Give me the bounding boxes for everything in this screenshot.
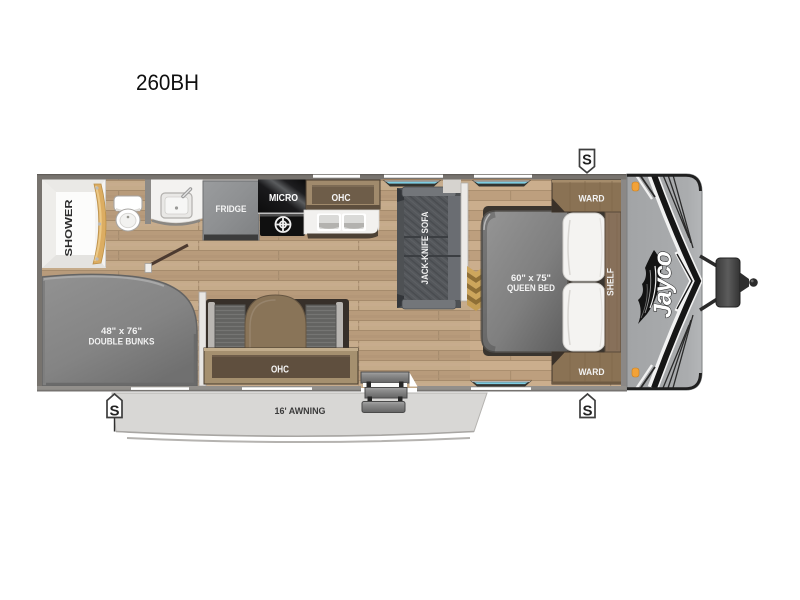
svg-text:FRIDGE: FRIDGE bbox=[216, 204, 247, 215]
svg-text:JACK-KNIFE SOFA: JACK-KNIFE SOFA bbox=[420, 211, 430, 284]
svg-text:OHC: OHC bbox=[271, 364, 289, 376]
svg-text:S: S bbox=[582, 403, 592, 420]
svg-text:Jayco: Jayco bbox=[649, 251, 677, 318]
svg-text:48" x 76": 48" x 76" bbox=[101, 326, 142, 337]
svg-text:QUEEN BED: QUEEN BED bbox=[507, 283, 555, 294]
svg-text:WARD: WARD bbox=[579, 193, 605, 203]
svg-text:WARD: WARD bbox=[579, 367, 605, 377]
svg-text:16' AWNING: 16' AWNING bbox=[275, 406, 326, 417]
svg-text:SHELF: SHELF bbox=[606, 268, 616, 296]
svg-text:S: S bbox=[582, 153, 592, 169]
svg-text:DOUBLE BUNKS: DOUBLE BUNKS bbox=[89, 337, 155, 348]
svg-text:S: S bbox=[109, 403, 119, 420]
svg-text:MICRO: MICRO bbox=[269, 192, 298, 204]
svg-text:OHC: OHC bbox=[332, 192, 351, 204]
svg-text:260BH: 260BH bbox=[136, 70, 199, 95]
svg-text:SHOWER: SHOWER bbox=[63, 199, 75, 257]
